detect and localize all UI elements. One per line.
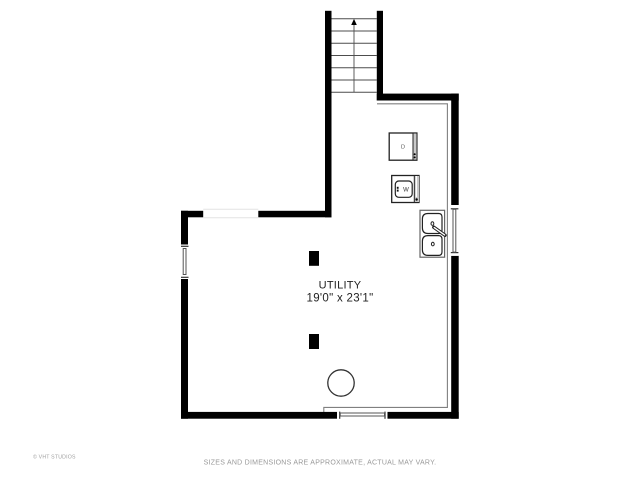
svg-text:D: D bbox=[401, 145, 405, 151]
svg-text:W: W bbox=[403, 188, 409, 194]
svg-text:19'0" x 23'1": 19'0" x 23'1" bbox=[307, 293, 374, 305]
svg-text:SIZES AND DIMENSIONS ARE APPRO: SIZES AND DIMENSIONS ARE APPROXIMATE, AC… bbox=[204, 460, 437, 467]
svg-text:UTILITY: UTILITY bbox=[319, 280, 362, 292]
svg-text:© VHT STUDIOS: © VHT STUDIOS bbox=[33, 454, 76, 461]
